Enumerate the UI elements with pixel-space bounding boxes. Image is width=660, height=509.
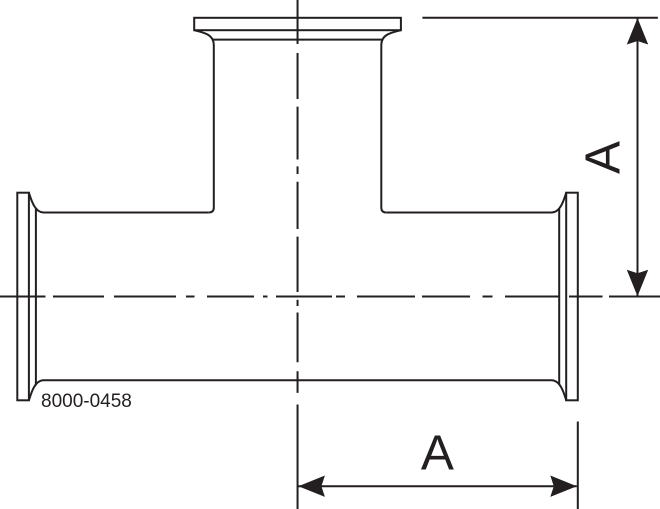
- svg-text:A: A: [576, 141, 631, 174]
- svg-text:A: A: [421, 425, 454, 480]
- svg-text:8000-0458: 8000-0458: [41, 391, 132, 412]
